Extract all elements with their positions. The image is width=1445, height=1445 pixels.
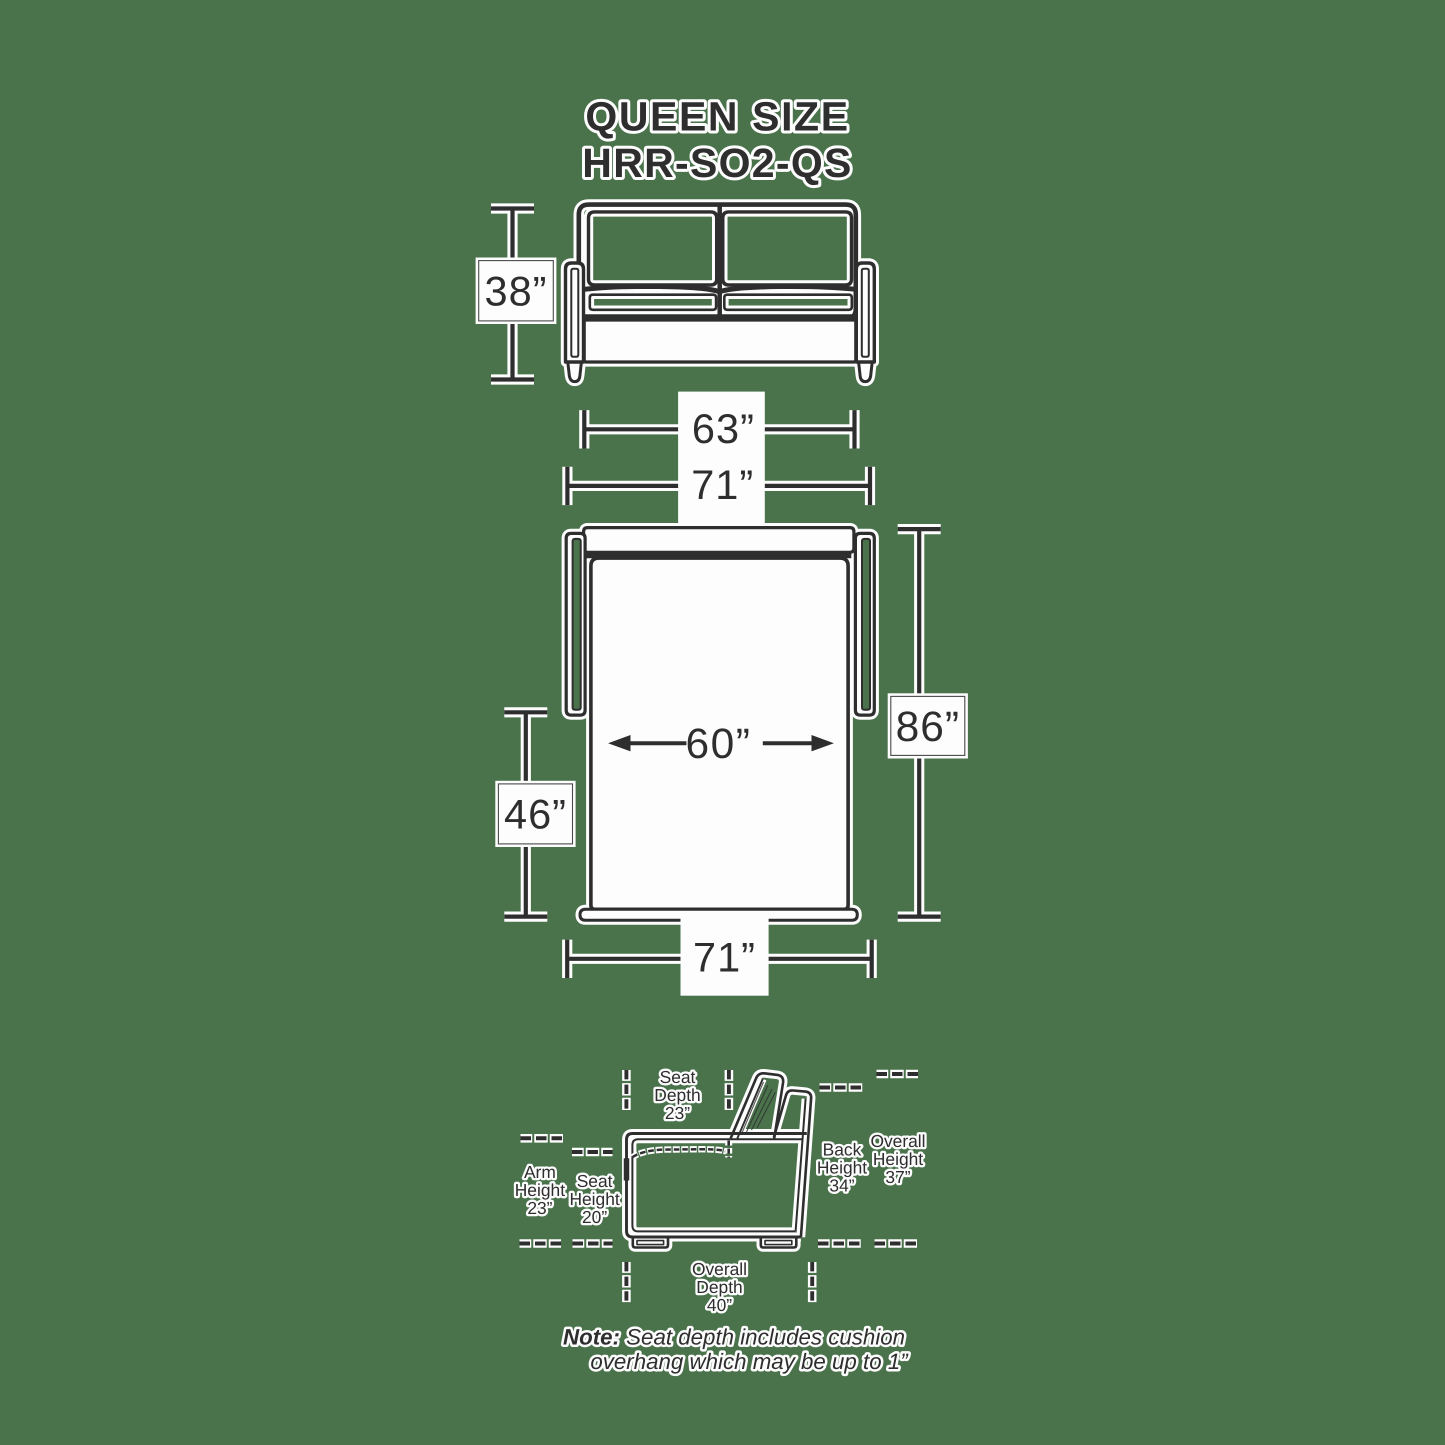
svg-text:Height: Height (817, 1158, 867, 1178)
svg-text:20”: 20” (582, 1207, 607, 1227)
svg-text:Overall: Overall (870, 1131, 925, 1151)
svg-text:Note: Seat depth includes cush: Note: Seat depth includes cushion (563, 1325, 905, 1350)
svg-text:Back: Back (823, 1140, 862, 1160)
svg-text:40”: 40” (707, 1295, 732, 1315)
svg-text:46”: 46” (504, 791, 567, 838)
svg-text:Seat: Seat (577, 1171, 613, 1191)
svg-text:Height: Height (515, 1180, 565, 1200)
svg-text:71”: 71” (691, 461, 754, 508)
svg-text:37”: 37” (885, 1167, 910, 1187)
svg-text:23”: 23” (527, 1198, 552, 1218)
svg-text:60”: 60” (686, 721, 752, 768)
svg-text:HRR-SO2-QS: HRR-SO2-QS (582, 140, 852, 186)
svg-text:86”: 86” (896, 704, 960, 751)
svg-text:71”: 71” (693, 934, 756, 981)
svg-text:Arm: Arm (524, 1162, 556, 1182)
svg-text:23”: 23” (665, 1103, 690, 1123)
svg-text:overhang which may be up to 1”: overhang which may be up to 1” (590, 1349, 909, 1374)
svg-text:34”: 34” (829, 1176, 854, 1196)
svg-text:Overall: Overall (692, 1259, 747, 1279)
svg-text:Height: Height (569, 1189, 619, 1209)
svg-text:Depth: Depth (654, 1085, 700, 1105)
svg-text:63”: 63” (692, 405, 755, 452)
svg-text:Seat: Seat (660, 1067, 696, 1087)
svg-text:QUEEN SIZE: QUEEN SIZE (585, 94, 849, 140)
svg-text:Depth: Depth (696, 1277, 742, 1297)
svg-text:38”: 38” (485, 267, 548, 314)
svg-text:Height: Height (873, 1149, 923, 1169)
